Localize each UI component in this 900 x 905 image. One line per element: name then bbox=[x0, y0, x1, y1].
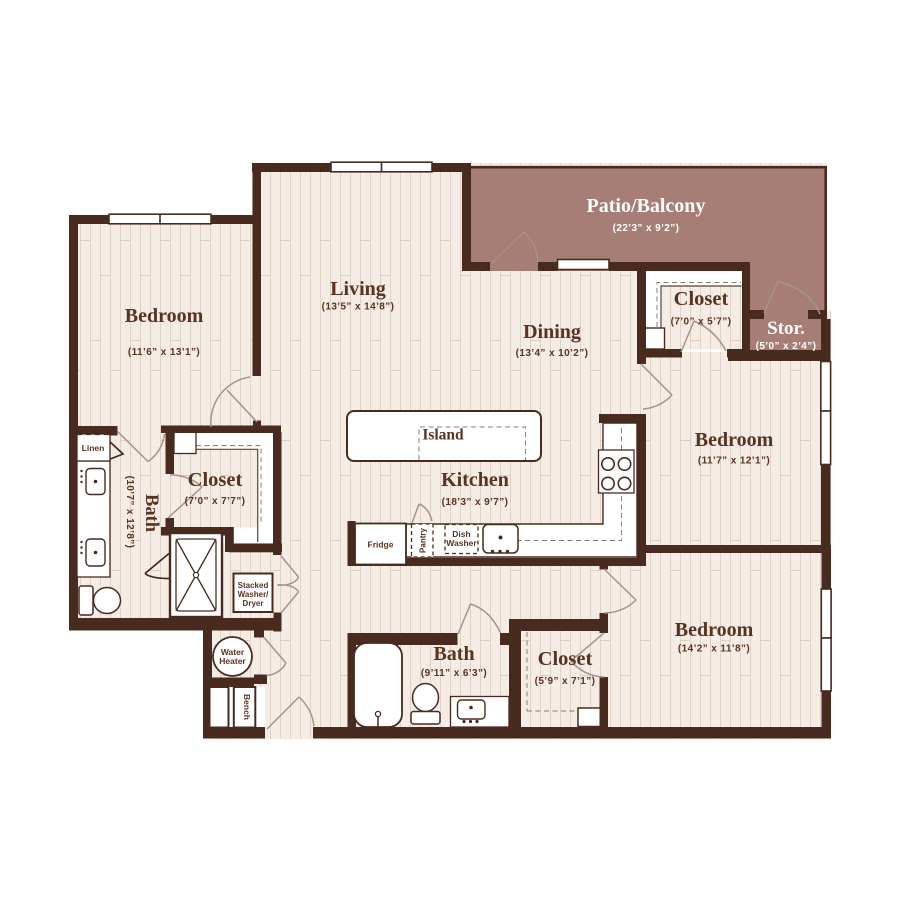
svg-text:Living: Living bbox=[330, 278, 386, 300]
svg-text:Stor.: Stor. bbox=[767, 318, 805, 339]
svg-text:(5’0” x 2’4”): (5’0” x 2’4”) bbox=[756, 341, 817, 352]
svg-text:Bedroom: Bedroom bbox=[125, 305, 204, 327]
svg-text:Heater: Heater bbox=[219, 656, 246, 666]
svg-text:(5’9” x 7’1”): (5’9” x 7’1”) bbox=[535, 676, 596, 687]
svg-text:(11’6” x 13’1”): (11’6” x 13’1”) bbox=[128, 347, 200, 358]
svg-text:(11’7” x 12’1”): (11’7” x 12’1”) bbox=[698, 456, 770, 467]
svg-text:Island: Island bbox=[422, 427, 464, 444]
svg-text:(7’0” x 5’7”): (7’0” x 5’7”) bbox=[671, 317, 732, 328]
svg-text:Kitchen: Kitchen bbox=[441, 469, 509, 491]
svg-text:Dryer: Dryer bbox=[243, 599, 264, 608]
svg-text:(10’7” x 12’8”): (10’7” x 12’8”) bbox=[124, 476, 135, 549]
svg-text:(13’5” x 14’8”): (13’5” x 14’8”) bbox=[322, 302, 395, 313]
svg-text:Pantry: Pantry bbox=[419, 528, 428, 553]
svg-text:(13’4” x 10’2”): (13’4” x 10’2”) bbox=[516, 348, 589, 359]
svg-text:Closet: Closet bbox=[674, 288, 729, 310]
svg-text:Bench: Bench bbox=[242, 694, 252, 720]
svg-text:Bedroom: Bedroom bbox=[675, 619, 754, 641]
svg-text:Linen: Linen bbox=[82, 443, 105, 453]
svg-text:Bath: Bath bbox=[141, 494, 161, 533]
svg-text:Patio/Balcony: Patio/Balcony bbox=[587, 195, 706, 217]
svg-text:Dining: Dining bbox=[523, 321, 581, 343]
svg-text:(22’3” x 9’2”): (22’3” x 9’2”) bbox=[613, 223, 680, 234]
svg-text:Bath: Bath bbox=[433, 643, 474, 665]
svg-text:Washer: Washer bbox=[446, 538, 477, 548]
svg-text:Closet: Closet bbox=[538, 648, 593, 670]
svg-text:(9’11” x 6’3”): (9’11” x 6’3”) bbox=[421, 668, 487, 679]
svg-text:Stacked: Stacked bbox=[238, 581, 269, 590]
svg-text:Fridge: Fridge bbox=[368, 540, 394, 550]
svg-text:(7’0” x 7’7”): (7’0” x 7’7”) bbox=[185, 496, 246, 507]
svg-text:Washer/: Washer/ bbox=[238, 590, 270, 599]
svg-text:(18’3” x 9’7”): (18’3” x 9’7”) bbox=[442, 497, 509, 508]
svg-text:(14’2” x 11’8”): (14’2” x 11’8”) bbox=[678, 644, 750, 655]
svg-text:Bedroom: Bedroom bbox=[695, 429, 774, 451]
svg-text:Closet: Closet bbox=[188, 469, 243, 491]
